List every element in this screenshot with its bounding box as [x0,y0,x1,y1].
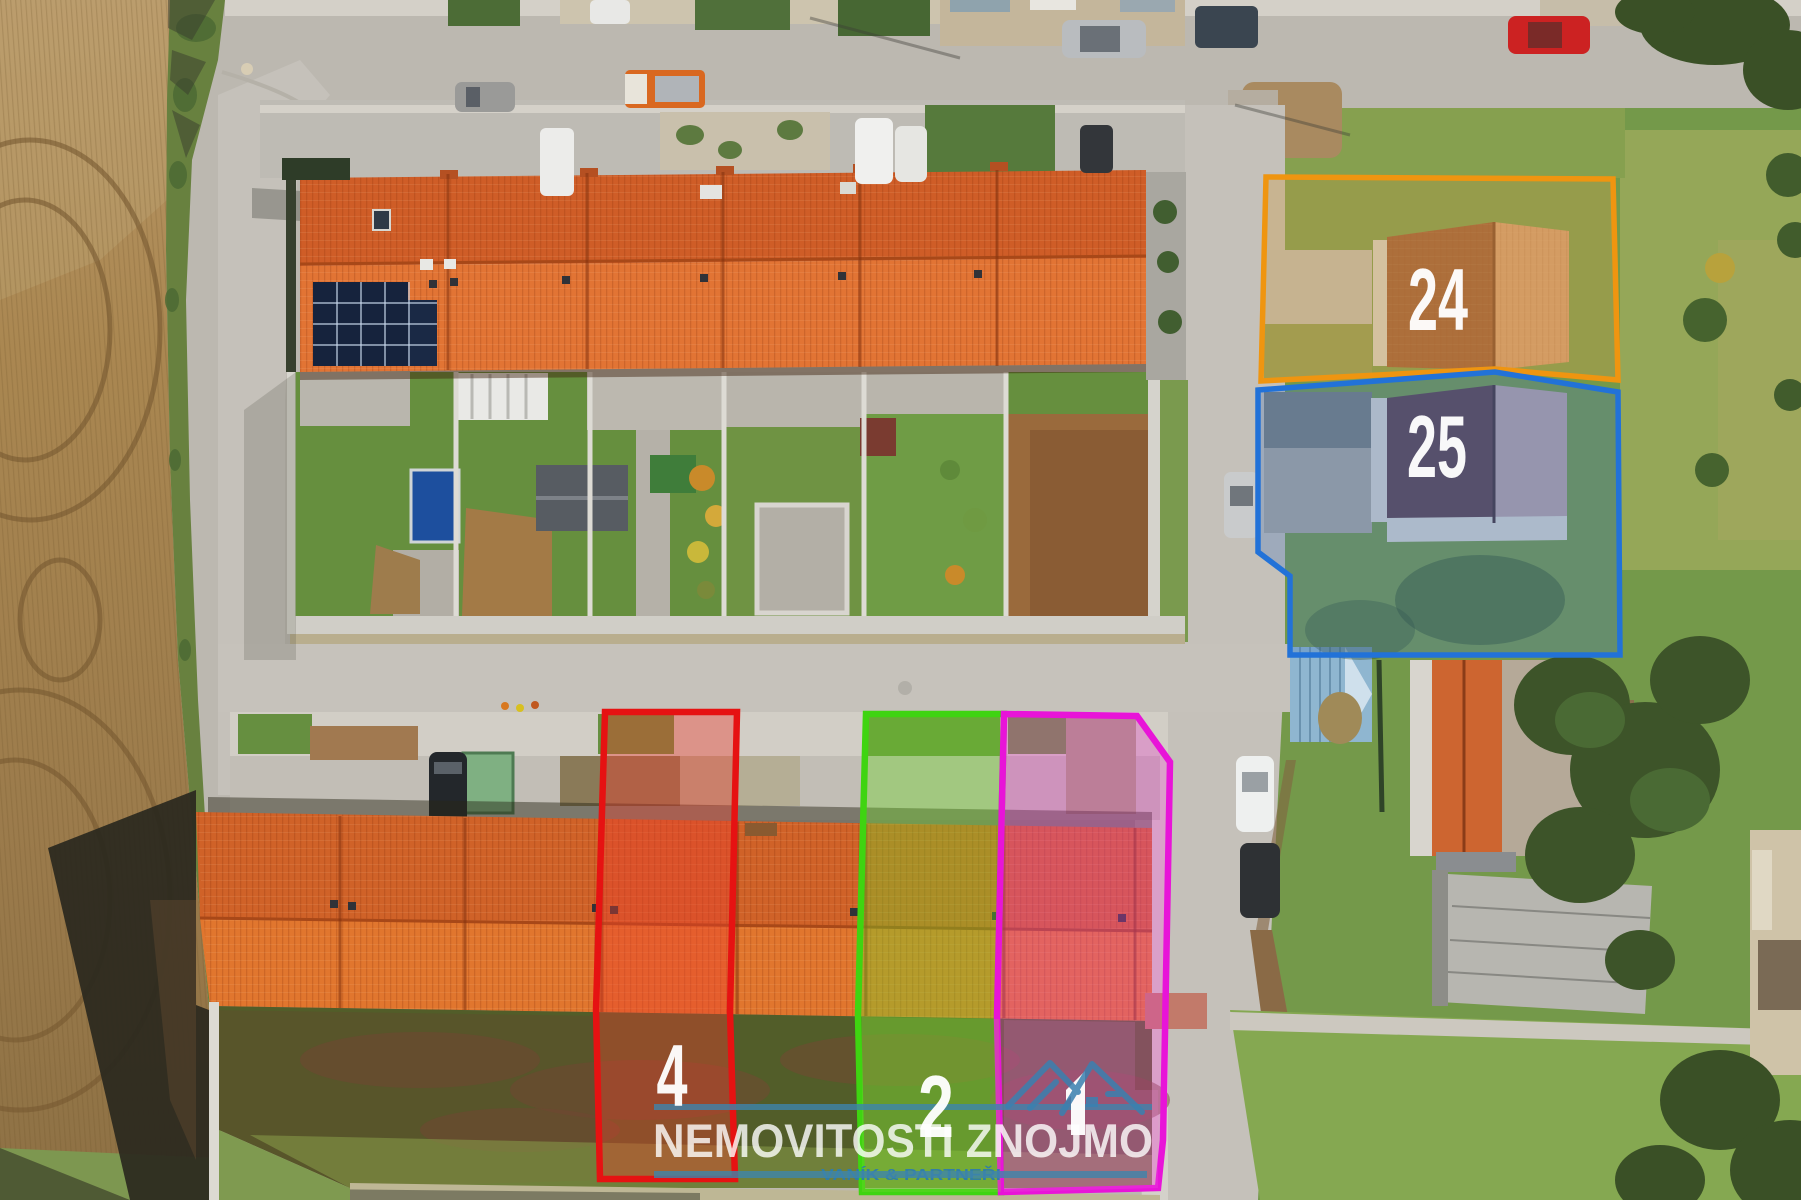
svg-text:4: 4 [657,1026,688,1125]
svg-text:25: 25 [1407,397,1467,496]
svg-text:NEMOVITOSTI ZNOJMO: NEMOVITOSTI ZNOJMO [653,1114,1153,1167]
svg-text:24: 24 [1408,250,1468,349]
